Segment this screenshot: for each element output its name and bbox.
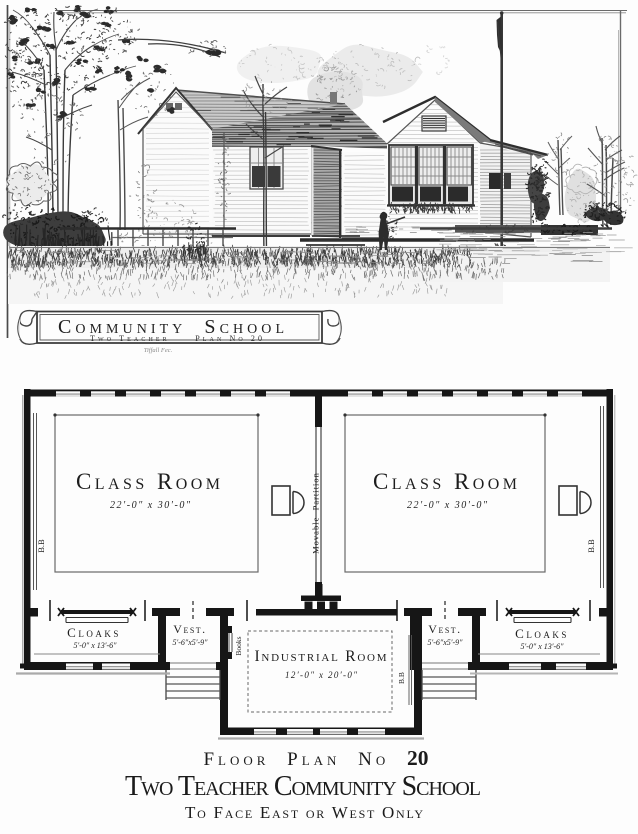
- svg-text:Two Teacher Community School: Two Teacher Community School: [125, 771, 481, 802]
- svg-text:Tiffall Fec.: Tiffall Fec.: [144, 347, 173, 354]
- svg-text:Vest.: Vest.: [428, 622, 461, 636]
- svg-text:5′-6″x5′-9″: 5′-6″x5′-9″: [427, 638, 463, 647]
- svg-text:5′-6″x5′-9″: 5′-6″x5′-9″: [172, 638, 208, 647]
- svg-text:22′-0″ x 30′-0″: 22′-0″ x 30′-0″: [110, 500, 191, 511]
- svg-text:Vest.: Vest.: [173, 622, 206, 636]
- svg-text:Cloaks: Cloaks: [515, 626, 569, 641]
- svg-text:12′-0″ x 20′-0″: 12′-0″ x 20′-0″: [285, 670, 357, 680]
- svg-text:5′-0″ x 13′-6″: 5′-0″ x 13′-6″: [73, 641, 117, 650]
- svg-text:B.B: B.B: [397, 672, 406, 684]
- svg-text:B.B: B.B: [586, 539, 596, 553]
- svg-text:Movable Partition: Movable Partition: [311, 472, 321, 554]
- svg-text:Class Room: Class Room: [76, 469, 224, 494]
- svg-text:5′-0″ x 13′-6″: 5′-0″ x 13′-6″: [520, 642, 564, 651]
- svg-text:B.B: B.B: [36, 539, 46, 553]
- svg-text:Books: Books: [234, 636, 243, 655]
- svg-text:Floor Plan No 20: Floor Plan No 20: [203, 746, 428, 770]
- svg-text:To Face East or West Only: To Face East or West Only: [185, 803, 423, 822]
- svg-text:22′-0″ x 30′-0″: 22′-0″ x 30′-0″: [407, 500, 488, 511]
- svg-text:Cloaks: Cloaks: [67, 625, 121, 640]
- svg-text:Class Room: Class Room: [373, 469, 521, 494]
- svg-text:Industrial Room: Industrial Room: [255, 648, 388, 665]
